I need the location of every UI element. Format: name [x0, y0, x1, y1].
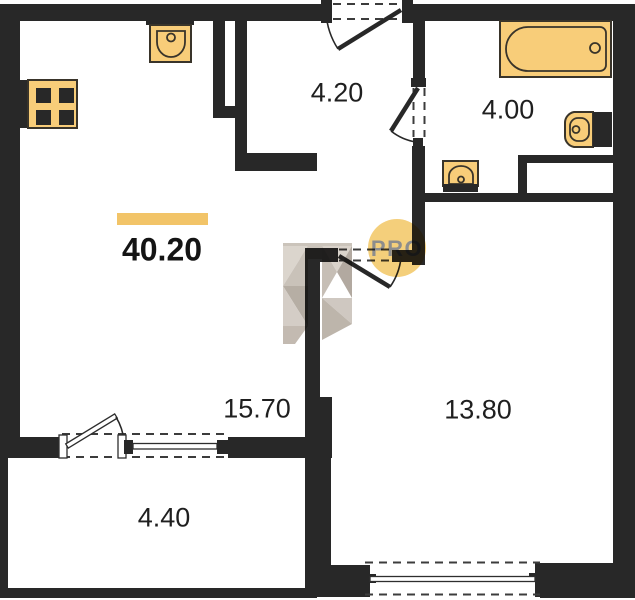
watermark-logo: [283, 243, 352, 344]
room-area-label-bathroom: 4.00: [482, 95, 535, 126]
room-area-label-living-room: 15.70: [223, 394, 291, 425]
floor-plan: PRO 40.20 4.20 4.00 15.70 13.80 4.40: [0, 0, 635, 600]
total-area-highlight-bar: [117, 213, 208, 225]
room-area-label-balcony: 4.40: [138, 503, 191, 534]
room-area-label-hallway: 4.20: [311, 78, 364, 109]
watermark-pro-text: PRO: [371, 236, 423, 261]
total-area-label: 40.20: [122, 232, 202, 269]
room-area-label-bedroom: 13.80: [444, 395, 512, 426]
